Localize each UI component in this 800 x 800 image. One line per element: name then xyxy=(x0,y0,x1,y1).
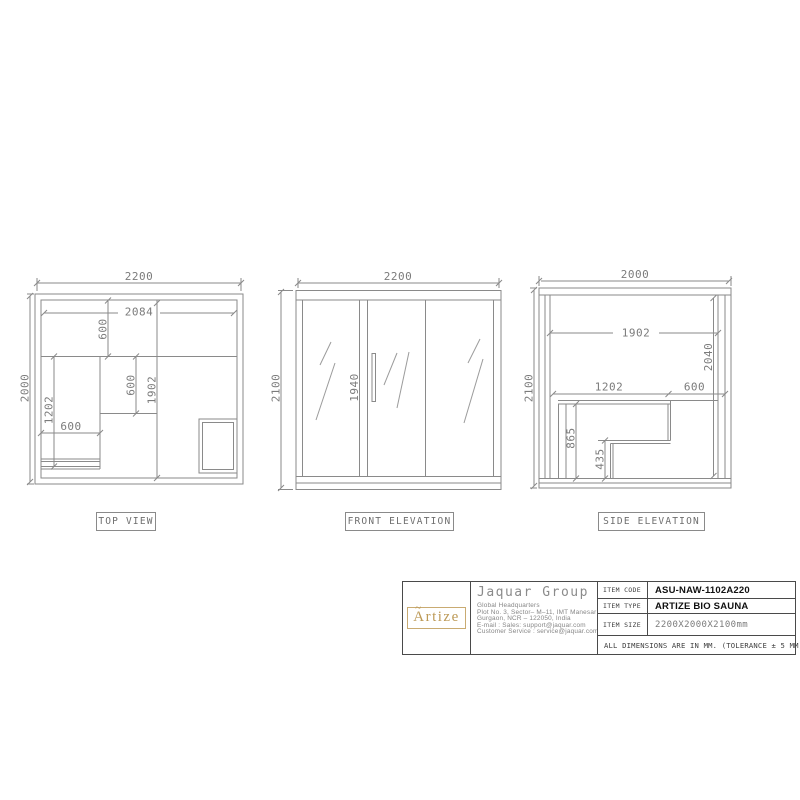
side-elevation-dimensions: 2000 2100 1902 2040 1202 600 865 435 xyxy=(523,268,716,470)
dim-side-step-height: 435 xyxy=(594,448,607,469)
item-size-value-cell: 2200X2000X2100mm xyxy=(647,614,795,635)
title-block: ~ Artize Jaquar Group Global Headquarter… xyxy=(402,581,796,655)
view-label-top-text: TOP VIEW xyxy=(98,516,153,527)
tolerance-note-row: ALL DIMENSIONS ARE IN MM. (TOLERANCE ± 5… xyxy=(598,636,795,654)
dim-side-bench-length: 1202 xyxy=(595,381,624,394)
item-size-value: 2200X2000X2100mm xyxy=(655,620,748,630)
dim-side-bench-offset: 600 xyxy=(684,381,705,394)
item-code-row: ITEM CODE ASU-NAW-1102A220 xyxy=(598,582,795,599)
dim-side-width: 2000 xyxy=(621,268,650,281)
front-elevation-dimensions: 2200 2100 1940 xyxy=(270,270,413,402)
item-info-table: ITEM CODE ASU-NAW-1102A220 ITEM TYPE ART… xyxy=(597,582,795,654)
logo-accent-mark: ~ xyxy=(415,602,422,614)
dim-front-door-height: 1940 xyxy=(348,373,361,402)
view-label-side-text: SIDE ELEVATION xyxy=(603,516,700,527)
company-name: Jaquar Group xyxy=(477,585,593,600)
artize-logo: ~ Artize xyxy=(407,607,465,629)
dim-side-height: 2100 xyxy=(523,374,536,403)
dim-front-width: 2200 xyxy=(384,270,413,283)
technical-drawing: 2200 2000 2084 600 1202 600 600 1902 xyxy=(0,0,800,800)
brand-logo-cell: ~ Artize xyxy=(403,582,470,654)
drawing-canvas: 2200 2000 2084 600 1202 600 600 1902 xyxy=(0,0,800,800)
dim-top-width: 2200 xyxy=(125,270,154,283)
dim-top-side-bench-length: 1202 xyxy=(43,396,56,425)
dim-front-height: 2100 xyxy=(270,374,283,403)
dim-top-walkway: 600 xyxy=(125,374,138,395)
address-line: Customer Service : service@jaquar.com xyxy=(477,629,593,636)
view-label-front-text: FRONT ELEVATION xyxy=(348,516,452,527)
view-label-top: TOP VIEW xyxy=(96,512,156,531)
dim-side-inner-width: 1902 xyxy=(622,327,651,340)
item-size-row: ITEM SIZE 2200X2000X2100mm xyxy=(598,614,795,636)
tolerance-note: ALL DIMENSIONS ARE IN MM. (TOLERANCE ± 5… xyxy=(604,641,800,650)
view-label-front: FRONT ELEVATION xyxy=(345,512,454,531)
item-code-value-cell: ASU-NAW-1102A220 xyxy=(647,582,795,598)
item-type-value-cell: ARTIZE BIO SAUNA xyxy=(647,599,795,613)
item-type-value: ARTIZE BIO SAUNA xyxy=(655,601,748,612)
dim-top-side-bench-width: 600 xyxy=(60,420,81,433)
front-elevation-linework xyxy=(278,278,502,491)
item-type-label: ITEM TYPE xyxy=(598,599,647,613)
company-address-cell: Jaquar Group Global Headquarters Plot No… xyxy=(470,582,597,654)
dim-top-depth: 2000 xyxy=(19,374,32,403)
dim-top-inner-width: 2084 xyxy=(125,306,154,319)
item-code-label: ITEM CODE xyxy=(598,582,647,598)
dim-side-inner-height: 2040 xyxy=(702,343,715,372)
dim-top-inner-depth: 1902 xyxy=(146,376,159,405)
dim-top-bench-depth: 600 xyxy=(97,318,110,339)
item-type-row: ITEM TYPE ARTIZE BIO SAUNA xyxy=(598,599,795,614)
item-code-value: ASU-NAW-1102A220 xyxy=(655,585,750,596)
view-label-side: SIDE ELEVATION xyxy=(598,512,705,531)
dim-side-bench-height: 865 xyxy=(565,427,578,448)
item-size-label: ITEM SIZE xyxy=(598,614,647,635)
